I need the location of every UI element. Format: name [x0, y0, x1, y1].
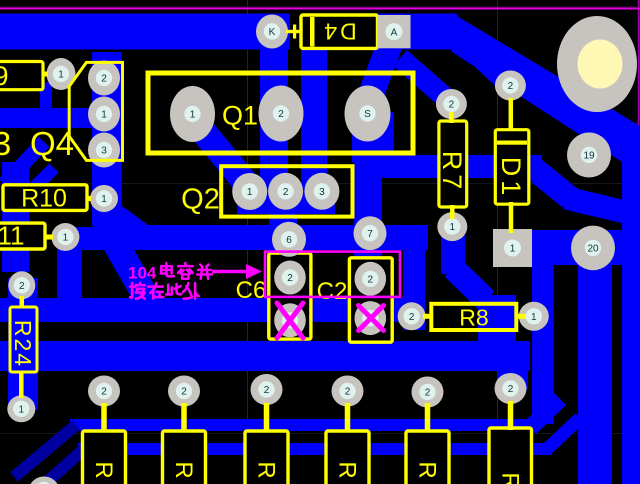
svg-text:1: 1 — [247, 187, 253, 198]
svg-text:20: 20 — [587, 244, 599, 255]
svg-text:7: 7 — [367, 229, 373, 240]
svg-text:2: 2 — [101, 387, 107, 398]
svg-text:2: 2 — [368, 274, 374, 285]
svg-text:C2: C2 — [317, 278, 348, 305]
svg-text:R10: R10 — [21, 185, 67, 213]
svg-text:R8: R8 — [459, 304, 488, 330]
svg-text:2: 2 — [449, 100, 455, 111]
svg-text:1: 1 — [63, 233, 69, 244]
svg-text:C6: C6 — [236, 277, 267, 304]
svg-text:R: R — [90, 461, 117, 478]
svg-text:Q4: Q4 — [30, 125, 74, 162]
svg-text:3: 3 — [319, 187, 325, 198]
svg-text:1: 1 — [510, 244, 516, 255]
svg-text:D4: D4 — [321, 19, 356, 45]
svg-text:2: 2 — [101, 74, 107, 85]
svg-text:1: 1 — [58, 70, 64, 81]
svg-text:1: 1 — [101, 110, 107, 121]
svg-text:A: A — [391, 27, 398, 38]
svg-text:S: S — [364, 109, 371, 120]
svg-text:3: 3 — [101, 146, 107, 157]
svg-text:2: 2 — [425, 388, 431, 399]
svg-text:2: 2 — [181, 387, 187, 398]
svg-text:R: R — [496, 472, 523, 484]
svg-text:2: 2 — [409, 312, 415, 323]
svg-text:2: 2 — [287, 273, 293, 284]
svg-text:2: 2 — [278, 109, 284, 120]
svg-text:2: 2 — [283, 187, 289, 198]
svg-text:R: R — [170, 461, 197, 478]
svg-text:104: 104 — [128, 264, 157, 283]
svg-text:19: 19 — [583, 151, 595, 162]
svg-text:Q2: Q2 — [181, 183, 220, 215]
svg-text:R: R — [413, 461, 440, 478]
svg-text:6: 6 — [286, 235, 292, 246]
svg-text:Q1: Q1 — [222, 101, 258, 131]
svg-text:1: 1 — [190, 110, 196, 121]
svg-text:R24: R24 — [10, 320, 36, 368]
svg-text:R: R — [252, 461, 279, 478]
svg-text:2: 2 — [508, 384, 514, 395]
svg-text:2: 2 — [19, 281, 25, 292]
svg-text:1: 1 — [531, 312, 537, 323]
svg-text:1: 1 — [450, 222, 456, 233]
svg-text:R: R — [333, 461, 360, 478]
svg-text:2: 2 — [345, 387, 351, 398]
svg-text:R7: R7 — [437, 151, 467, 194]
svg-text:9: 9 — [0, 61, 9, 91]
svg-text:D1: D1 — [496, 157, 526, 200]
svg-text:2: 2 — [264, 385, 270, 396]
svg-text:1: 1 — [19, 404, 25, 415]
svg-text:1: 1 — [101, 194, 107, 205]
svg-text:K: K — [269, 27, 276, 38]
svg-text:11: 11 — [0, 221, 25, 251]
svg-text:3: 3 — [0, 125, 11, 162]
svg-text:2: 2 — [508, 81, 514, 92]
